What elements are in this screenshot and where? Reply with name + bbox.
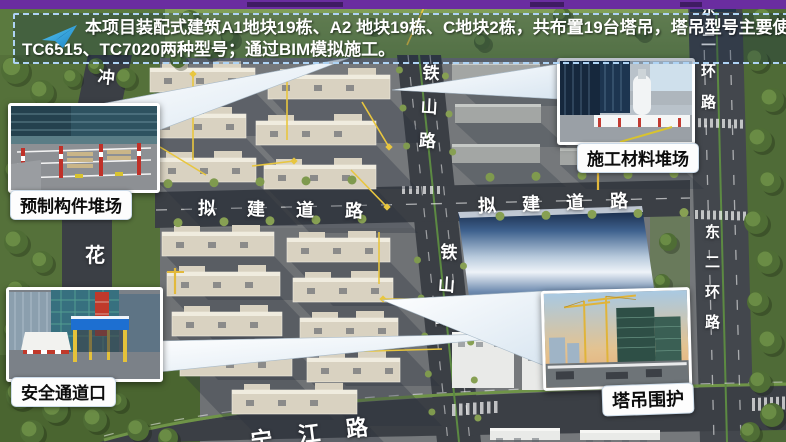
forest-east (742, 0, 786, 442)
safety-gate-photo (6, 287, 163, 382)
callout-label-precast: 预制构件堆场 (10, 190, 132, 220)
pointer-safety (158, 333, 550, 372)
material-yard-photo (557, 58, 695, 145)
precast-yard-photo (8, 103, 160, 193)
road-label-hua: 花 (85, 239, 105, 268)
info-banner: 本项目装配式建筑A1地块19栋、A2 地块19栋、C地块2栋，共布置19台塔吊，… (13, 13, 786, 64)
callout-label-crane: 塔吊围护 (601, 382, 694, 416)
purple-top-strip (0, 0, 786, 9)
road-label-proposed-west: 拟建道路 (198, 194, 394, 223)
tower-crane-photo (541, 287, 693, 391)
banner-text-line1: 本项目装配式建筑A1地块19栋、A2 地块19栋、C地块2栋，共布置19台塔吊，… (15, 15, 786, 39)
pointer-crane (382, 291, 545, 366)
road-label-east-ring-south: 东二环路 (701, 224, 722, 344)
road-label-tieshan-north: 铁山路 (412, 63, 442, 166)
road-label-tieshan-south: 铁山路 (428, 242, 460, 343)
slide-canvas: 铁山路 铁山路 东二环路 东二环路 拟建道路 拟建道路 花 冲 宁江路 (0, 0, 786, 442)
road-label-ningjiang: 宁江路 (249, 406, 396, 442)
road-label-chong: 冲 (97, 62, 117, 89)
paper-plane-arrow-icon (41, 24, 79, 50)
banner-text-line2: TC6515、TC7020两种型号；通过BIM模拟施工。 (15, 39, 786, 61)
callout-label-material: 施工材料堆场 (577, 143, 699, 173)
road-label-proposed-east: 拟建道路 (478, 186, 655, 218)
callout-label-safety: 安全通道口 (11, 377, 116, 407)
